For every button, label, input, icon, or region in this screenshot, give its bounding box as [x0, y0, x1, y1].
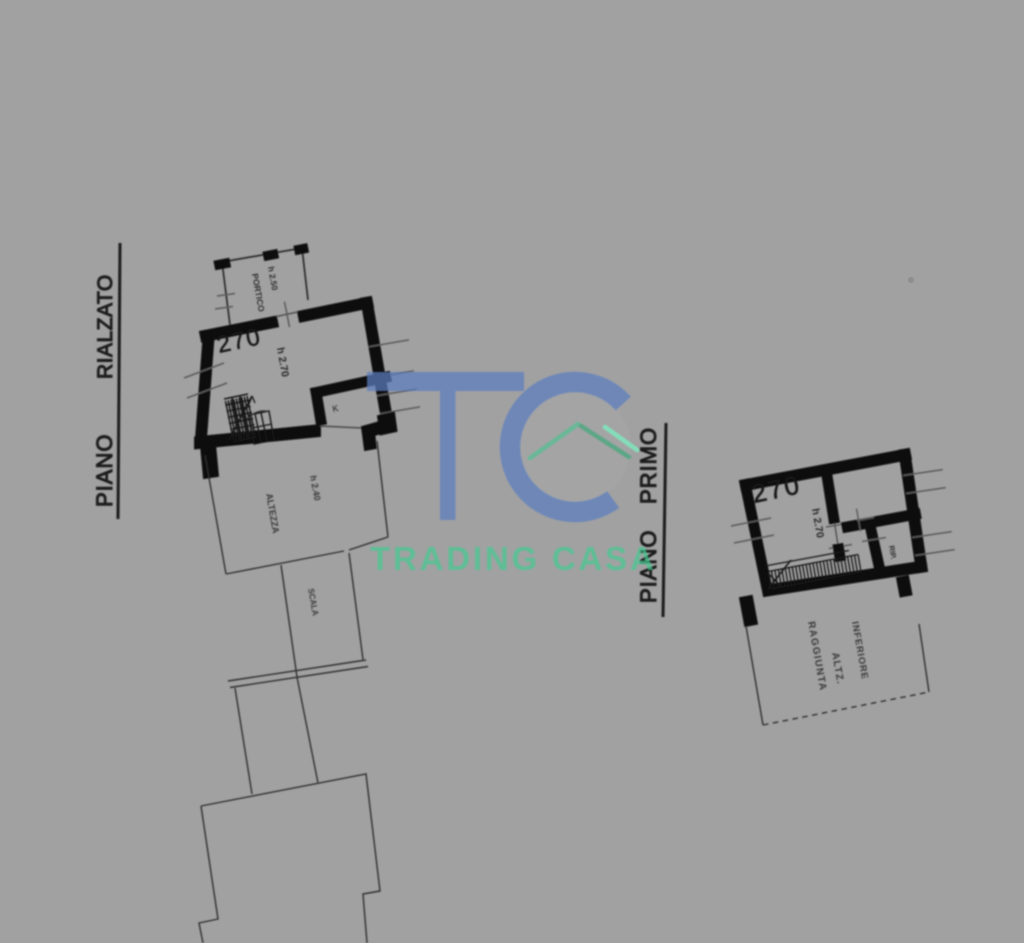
svg-text:RIALZATO: RIALZATO: [94, 274, 117, 379]
svg-text:TRADING CASA: TRADING CASA: [370, 540, 657, 577]
svg-text:PRIMO: PRIMO: [636, 427, 661, 504]
svg-text:PIANO: PIANO: [92, 434, 117, 507]
